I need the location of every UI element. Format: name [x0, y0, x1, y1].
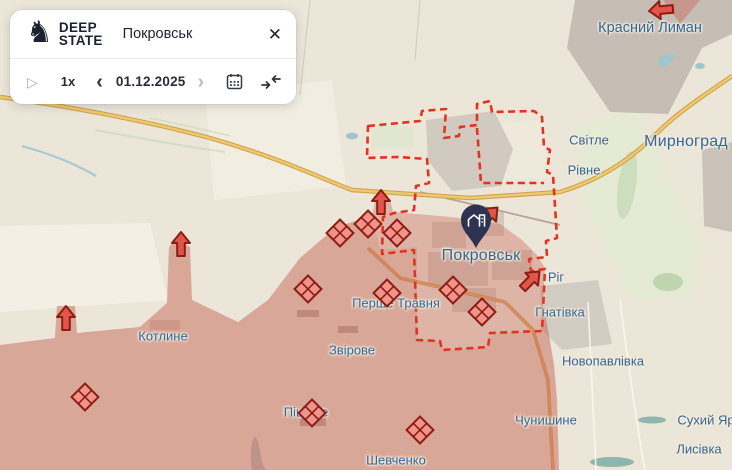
search-input[interactable]: Покровськ [123, 26, 193, 42]
map-label: Світле [569, 133, 609, 148]
advance-arrow-marker[interactable] [55, 304, 77, 332]
combat-diamond-marker[interactable] [372, 278, 402, 308]
deepstate-knight-logo-icon: ♞ [26, 18, 53, 48]
map-label: Шевченко [366, 453, 426, 468]
combat-diamond-marker[interactable] [297, 398, 327, 428]
playback-row: ▷ 1x ‹ 01.12.2025 › [10, 59, 296, 104]
converging-arrows-icon [261, 74, 281, 90]
advance-arrow-marker[interactable] [513, 262, 548, 297]
play-button[interactable]: ▷ [27, 75, 38, 89]
advance-arrow-marker[interactable] [170, 230, 192, 258]
selected-location-pin[interactable] [456, 201, 496, 256]
combat-diamond-marker[interactable] [467, 297, 497, 327]
map-label: Красний Лиман [598, 20, 702, 36]
combat-diamond-marker[interactable] [438, 275, 468, 305]
deepstate-brand: DEEP STATE [59, 21, 103, 47]
map-label: Гнатівка [535, 305, 584, 320]
playback-speed-button[interactable]: 1x [61, 74, 75, 89]
brand-line2: STATE [59, 34, 103, 47]
search-row: ♞ DEEP STATE Покровськ ✕ [10, 10, 296, 58]
map-canvas[interactable]: Красний ЛиманСвітлеМирноградРівнеПокровс… [0, 0, 732, 470]
next-day-button[interactable]: › [198, 73, 205, 91]
city-pin-icon [456, 201, 496, 251]
map-label: Звірове [329, 343, 375, 358]
combat-diamond-marker[interactable] [70, 382, 100, 412]
date-display[interactable]: 01.12.2025 [116, 74, 186, 89]
combat-diamond-marker[interactable] [405, 415, 435, 445]
jump-to-latest-button[interactable] [261, 74, 281, 90]
map-label: Котлине [138, 329, 187, 344]
combat-diamond-marker[interactable] [293, 274, 323, 304]
map-label: Рівне [568, 163, 601, 178]
combat-diamond-marker[interactable] [325, 218, 355, 248]
calendar-icon [226, 73, 243, 90]
map-label: Сухий Яр [677, 413, 732, 428]
combat-diamond-marker[interactable] [382, 218, 412, 248]
calendar-button[interactable] [226, 73, 243, 90]
advance-arrow-marker[interactable] [646, 0, 676, 22]
map-label: Новопавлівка [562, 354, 644, 369]
map-label: Лисівка [676, 442, 721, 457]
map-label: Мирноград [644, 133, 728, 151]
map-label: Чунишине [515, 413, 577, 428]
close-button[interactable]: ✕ [268, 26, 282, 43]
deepstate-control-card: ♞ DEEP STATE Покровськ ✕ ▷ 1x ‹ 01.12.20… [10, 10, 296, 104]
map-label: Ріг [548, 270, 564, 285]
previous-day-button[interactable]: ‹ [96, 73, 103, 91]
advance-arrow-marker[interactable] [370, 188, 392, 216]
